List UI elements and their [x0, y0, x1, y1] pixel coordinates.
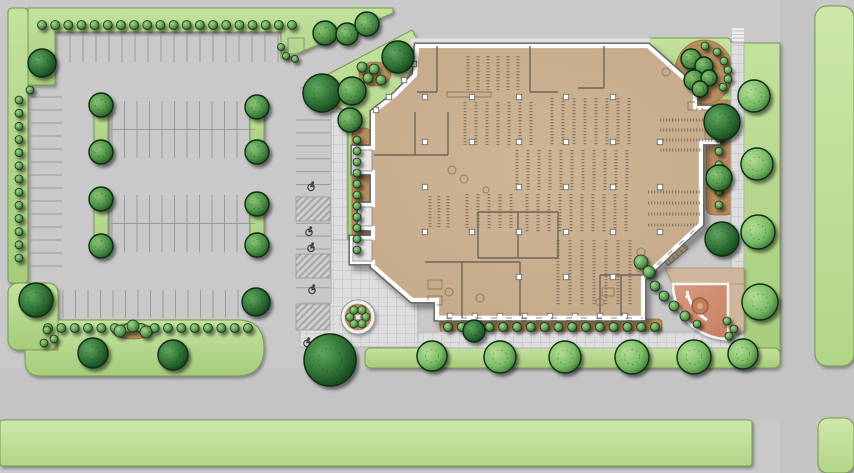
tree [245, 233, 269, 257]
tree [355, 12, 379, 36]
tree [382, 41, 414, 73]
tree [28, 49, 56, 77]
tree [417, 341, 447, 371]
circular-planter [341, 300, 375, 334]
tree [158, 340, 188, 370]
tree [245, 192, 269, 216]
tree [313, 21, 337, 45]
tree [738, 80, 770, 112]
tree [741, 148, 773, 180]
tree [89, 187, 113, 211]
tree [704, 104, 740, 140]
tree [89, 234, 113, 258]
tree [89, 93, 113, 117]
tree [304, 334, 356, 386]
tree [245, 95, 269, 119]
planter-shrub [350, 306, 358, 314]
planter-shrub [358, 320, 366, 328]
site-plan-page [0, 0, 854, 473]
tree [742, 284, 778, 320]
tree [303, 74, 341, 112]
tree [706, 165, 732, 191]
tree [89, 140, 113, 164]
tree [242, 288, 270, 316]
tree [463, 320, 485, 342]
accessible-aisle-hatches [296, 197, 330, 330]
tree [705, 222, 739, 256]
site-plan-drawing [0, 0, 854, 473]
tree [549, 341, 581, 373]
planter-shrub [358, 306, 366, 314]
tree [19, 283, 53, 317]
tree [338, 77, 366, 105]
tree [484, 341, 516, 373]
tree [615, 340, 649, 374]
tree [338, 108, 362, 132]
tree [741, 215, 775, 249]
tree [677, 340, 711, 374]
tree [78, 338, 108, 368]
tree [692, 81, 708, 97]
tree [728, 339, 758, 369]
tree [245, 140, 269, 164]
